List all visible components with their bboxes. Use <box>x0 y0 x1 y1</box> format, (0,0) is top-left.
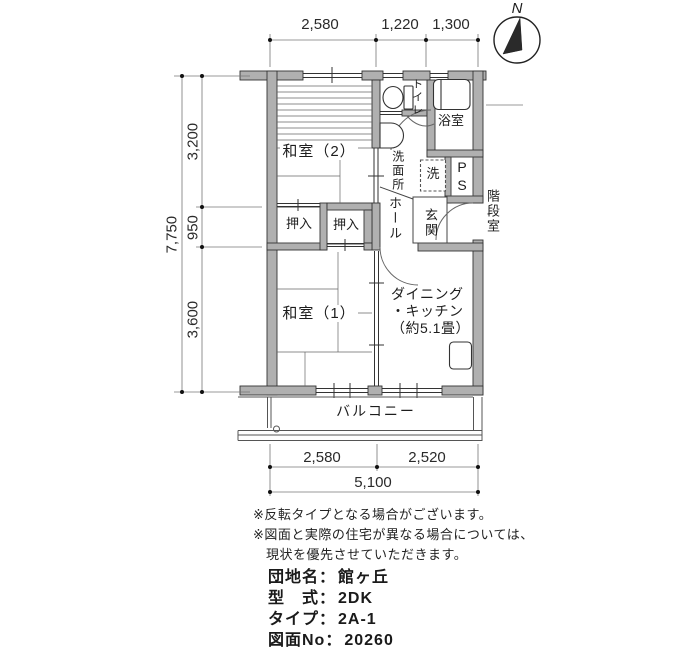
room-label-washitsu1: 和室（1） <box>280 305 358 322</box>
floorplan-page: 2,580 1,220 1,300 N 7,750 3,200 950 3,60… <box>0 0 700 650</box>
room-label-hall: ホール <box>386 191 401 245</box>
dimension-lines <box>174 34 523 496</box>
dim-bottom-total: 5,100 <box>348 474 398 491</box>
dim-top-3: 1,300 <box>426 16 476 33</box>
kitchen-sink-icon <box>450 342 472 369</box>
dim-bottom-2: 2,520 <box>402 449 452 466</box>
room-label-washer: 洗 <box>425 167 441 182</box>
dim-top-1: 2,580 <box>295 16 345 33</box>
room-label-stairwell: 階段室 <box>484 182 499 240</box>
room-label-balcony: バルコニー <box>330 403 422 419</box>
note-line-1: ※反転タイプとなる場合がございます。 <box>253 504 492 523</box>
washbasin-icon <box>380 123 404 148</box>
note-line-2: ※図面と実際の住宅が異なる場合については、 <box>253 524 534 543</box>
room-label-pipe-space: PS <box>454 158 470 196</box>
room-label-closet1: 押入 <box>283 217 315 232</box>
room-label-washitsu2: 和室（2） <box>280 143 358 160</box>
room-label-bath: 浴室 <box>434 114 468 129</box>
room-label-toilet: トイレ <box>410 77 423 117</box>
bathtub-icon <box>434 80 471 110</box>
dim-bottom-1: 2,580 <box>297 449 347 466</box>
room-label-entrance: 玄関 <box>422 205 437 241</box>
room-label-dk-2: ・キッチン <box>391 303 477 320</box>
compass-icon <box>494 17 540 63</box>
room-label-closet2: 押入 <box>330 218 362 233</box>
hall-dk-door-arc <box>380 247 418 285</box>
info-row-drawing-no: 図面No：20260 <box>268 626 394 650</box>
dim-left-2: 950 <box>184 200 201 256</box>
info-label-drawing-no: 図面No： <box>268 632 342 649</box>
compass-north-label: N <box>508 0 526 17</box>
room-label-washroom: 洗面所 <box>390 146 404 196</box>
dim-left-total: 7,750 <box>163 207 180 263</box>
dim-left-1: 3,200 <box>184 114 201 170</box>
room-label-dk-3: （約5.1畳） <box>391 320 477 337</box>
info-value-drawing-no: 20260 <box>344 632 394 649</box>
dim-left-3: 3,600 <box>184 292 201 348</box>
dim-top-2: 1,220 <box>375 16 425 33</box>
note-line-3: 現状を優先させていただきます。 <box>266 544 467 563</box>
room-label-dk-1: ダイニング <box>391 286 477 303</box>
balcony-drain <box>274 426 280 432</box>
toilet-bowl-icon <box>383 87 403 109</box>
